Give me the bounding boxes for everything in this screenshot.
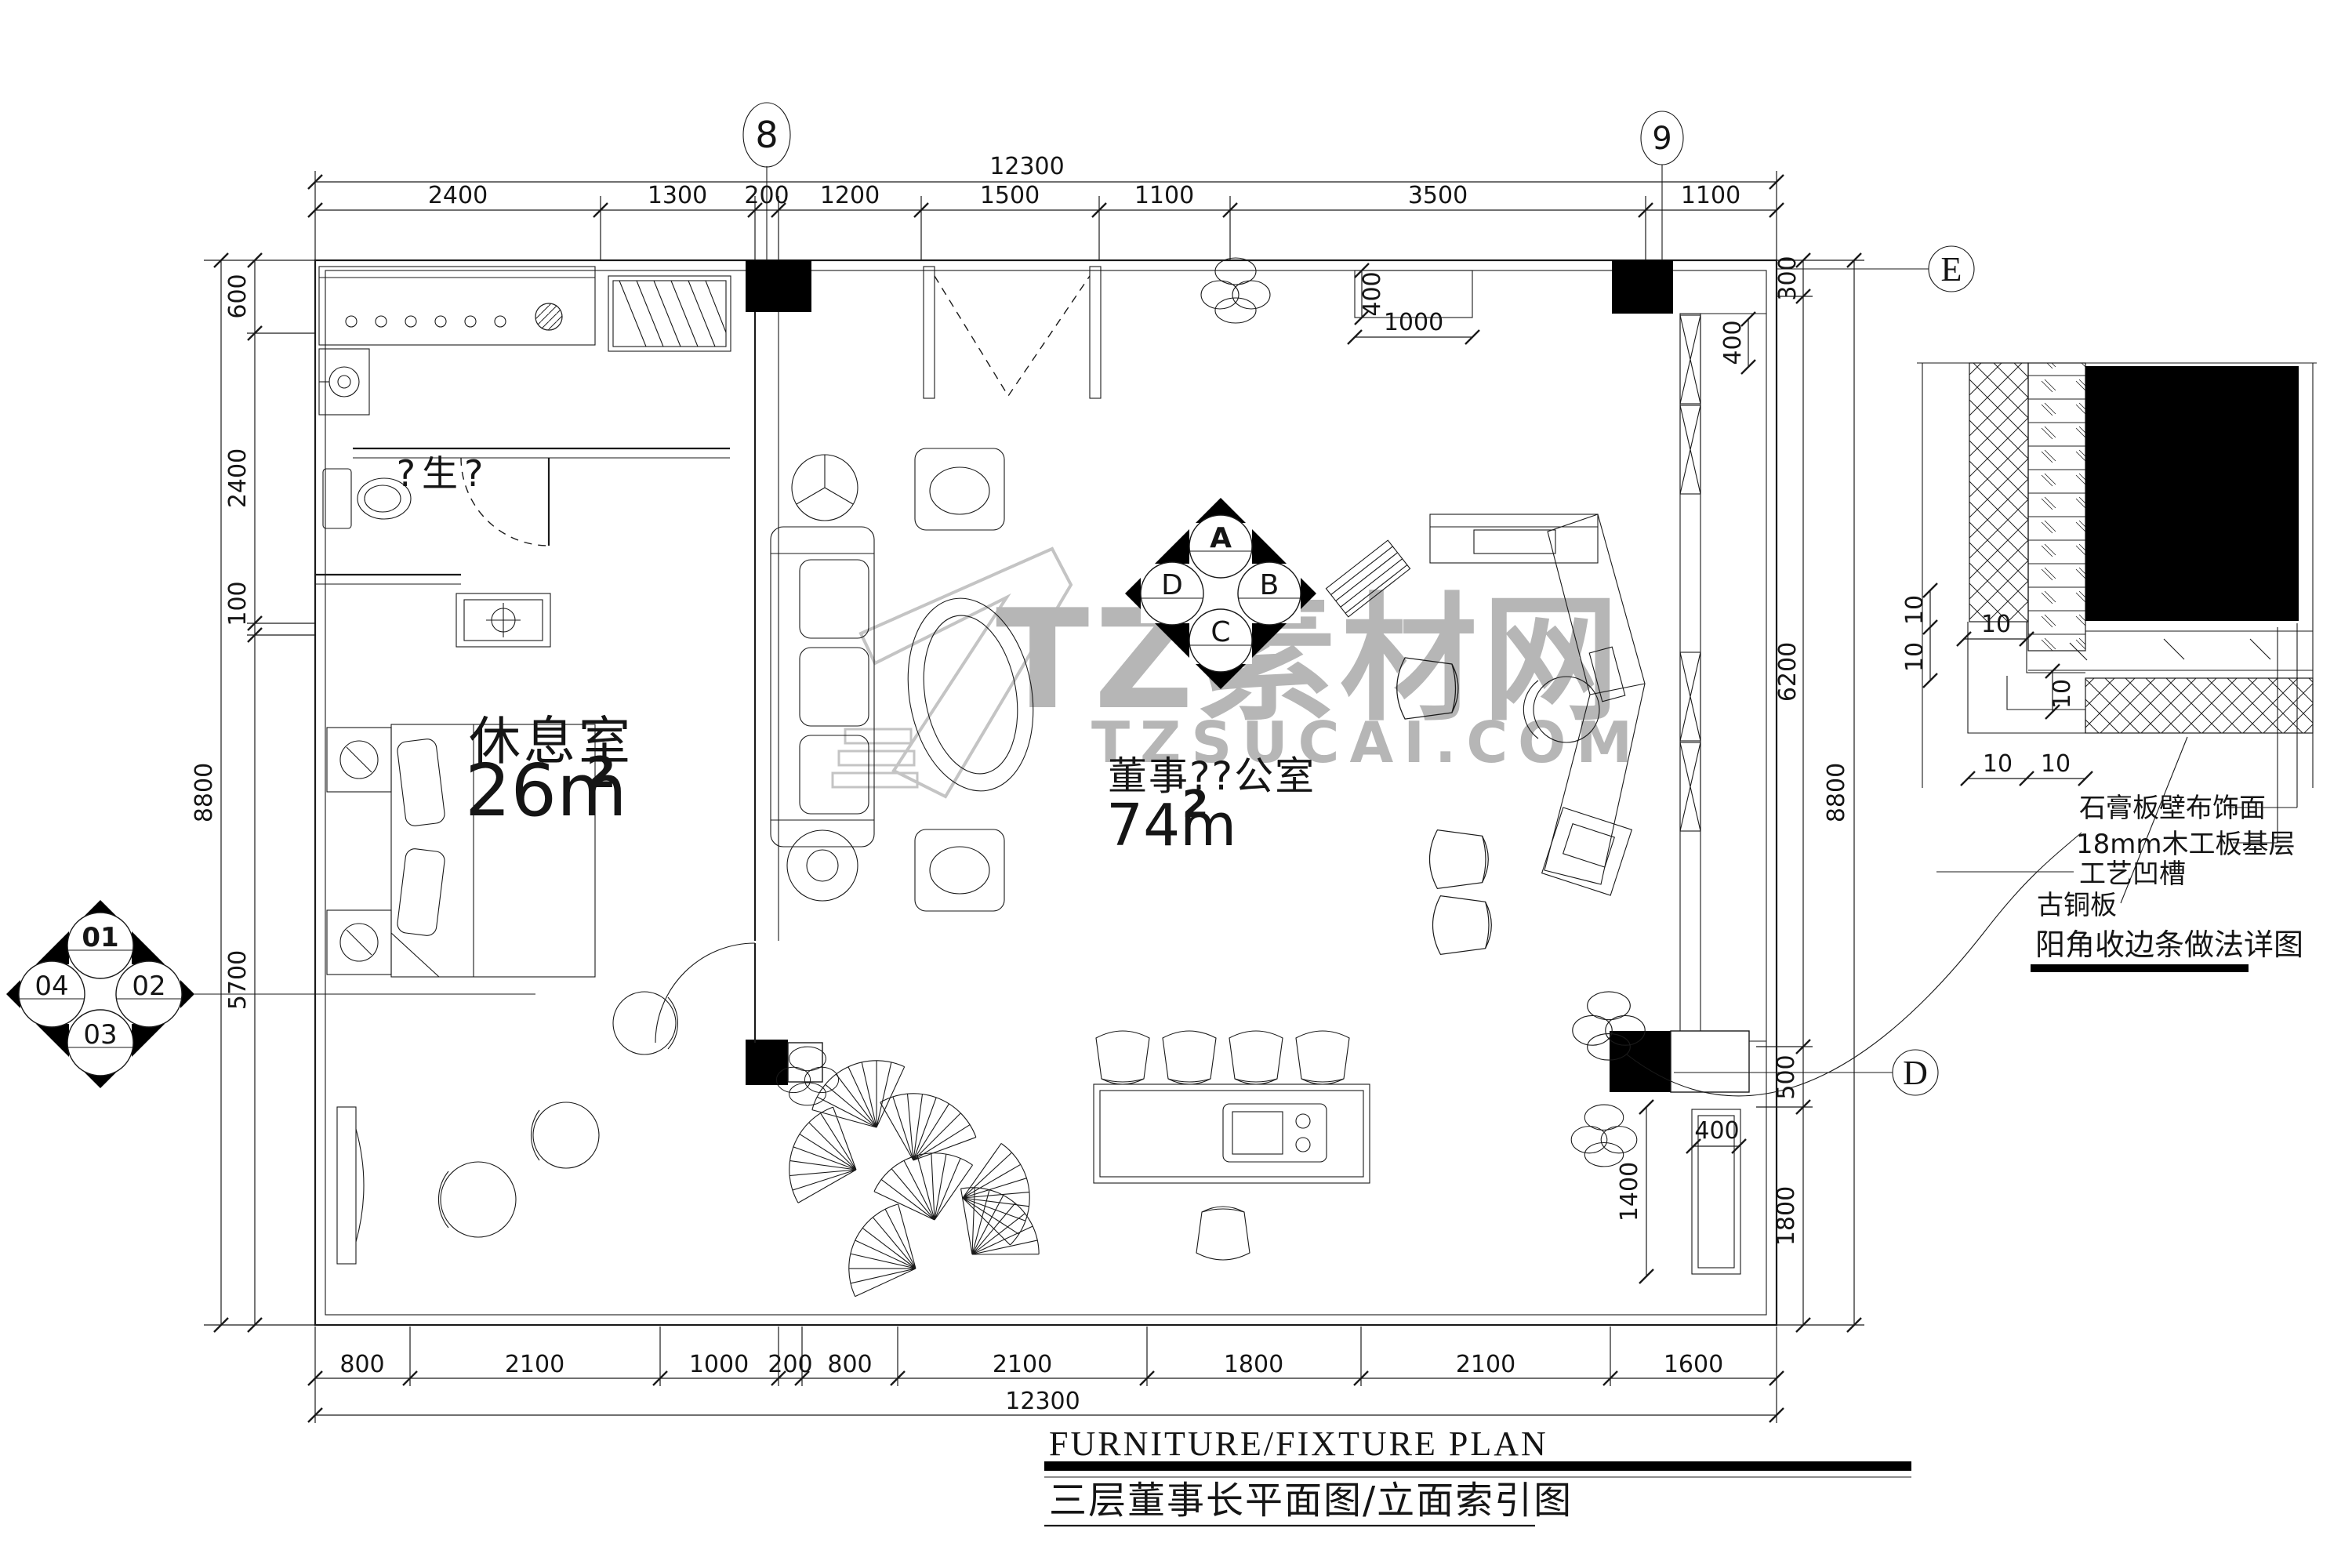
svg-text:500: 500 <box>1773 1054 1800 1099</box>
round-chair <box>438 1162 516 1237</box>
svg-text:02: 02 <box>132 971 165 1002</box>
side-table <box>787 830 858 901</box>
guest-chair <box>1430 830 1489 889</box>
detail-title: 阳角收边条做法详图 <box>2035 927 2303 962</box>
wood-hatch <box>2028 363 2085 651</box>
grid-bubble-9: 9 <box>1652 121 1671 157</box>
svg-text:10: 10 <box>2041 750 2071 778</box>
armchair <box>915 448 1004 530</box>
svg-text:3500: 3500 <box>1408 182 1468 209</box>
title-en: FURNITURE/FIXTURE PLAN <box>1049 1425 1548 1463</box>
dim-top-total: 12300 <box>989 153 1064 180</box>
svg-text:2100: 2100 <box>505 1351 564 1378</box>
dim-left-total: 8800 <box>191 763 218 822</box>
svg-text:1600: 1600 <box>1664 1351 1723 1378</box>
column-grid8 <box>746 260 811 312</box>
side-table <box>792 455 858 521</box>
sink <box>319 349 369 415</box>
svg-text:800: 800 <box>339 1351 384 1378</box>
dims-right: 300 6200 500 1800 8800 <box>1756 253 1864 1332</box>
room-area-office: 74m <box>1106 792 1236 859</box>
svg-text:1400: 1400 <box>1616 1162 1643 1221</box>
plaster-hatch <box>1969 363 2028 622</box>
bathroom: ?生? <box>319 267 595 546</box>
plant <box>833 1142 1054 1315</box>
svg-text:200: 200 <box>744 182 789 209</box>
svg-text:C: C <box>1210 616 1230 648</box>
svg-text:200: 200 <box>768 1351 812 1378</box>
dims-bottom: 800 2100 1000 200 800 2100 1800 2100 160… <box>308 1327 1784 1423</box>
svg-text:D: D <box>1161 569 1183 601</box>
svg-text:300: 300 <box>1774 256 1802 300</box>
title-block: FURNITURE/FIXTURE PLAN 三层董事长平面图/立面索引图 <box>1044 1425 1911 1526</box>
armchair <box>531 1102 599 1168</box>
svg-text:1800: 1800 <box>1224 1351 1283 1378</box>
grid-bubble-D: D <box>1903 1054 1928 1092</box>
floorplan-drawing: TZ素材网 TZSUCAI.COM <box>0 0 2352 1568</box>
nightstand <box>327 910 391 975</box>
grid-bubble-8: 8 <box>755 114 778 156</box>
callout-label: 石膏板壁布饰面 <box>2079 793 2266 824</box>
callout-label: 18mm木工板基层 <box>2076 829 2296 860</box>
dims-top: 12300 2400 1300 200 1200 1500 1100 3500 … <box>308 153 1784 260</box>
dims-left: 600 2400 100 5700 8800 <box>191 253 315 1332</box>
bedroom: 休息室 26m 2 <box>327 593 755 1264</box>
svg-text:1500: 1500 <box>980 182 1040 209</box>
svg-text:1100: 1100 <box>1134 182 1194 209</box>
svg-text:100: 100 <box>224 581 252 626</box>
svg-text:800: 800 <box>827 1351 872 1378</box>
wardrobe <box>608 276 731 351</box>
laptop-table <box>1542 808 1632 895</box>
section-fill <box>2085 366 2299 621</box>
callout-label: 工艺凹槽 <box>2079 858 2186 890</box>
sofa <box>771 527 874 847</box>
armchair <box>915 829 1004 911</box>
svg-text:10: 10 <box>2049 679 2076 709</box>
svg-text:1800: 1800 <box>1773 1186 1800 1246</box>
bath-label: ?生? <box>397 452 490 495</box>
meeting-table-group <box>1094 1031 1370 1260</box>
console-table <box>456 593 550 647</box>
svg-text:1000: 1000 <box>689 1351 749 1378</box>
callout-label: 古铜板 <box>2037 890 2117 921</box>
svg-text:10: 10 <box>1901 642 1929 672</box>
svg-text:6200: 6200 <box>1774 642 1802 702</box>
vanity-counter <box>319 267 595 345</box>
svg-text:1200: 1200 <box>820 182 880 209</box>
room-area-rest-sup: 2 <box>586 748 616 797</box>
svg-text:600: 600 <box>224 274 252 318</box>
svg-text:2100: 2100 <box>1456 1351 1515 1378</box>
detail-callout: 石膏板壁布饰面 18mm木工板基层 工艺凹槽 古铜板 阳角收边条做法详图 <box>1936 623 2303 972</box>
bedroom-door-swing <box>655 943 755 1043</box>
dim-bottom-total: 12300 <box>1005 1388 1080 1415</box>
elevation-index-left: 01 02 03 04 <box>6 900 535 1088</box>
svg-text:10: 10 <box>1901 595 1929 625</box>
grid-bubble-E: E <box>1941 250 1962 289</box>
svg-text:10: 10 <box>1983 750 2013 778</box>
svg-text:1300: 1300 <box>648 182 707 209</box>
svg-text:400: 400 <box>1694 1117 1739 1145</box>
column-grid9 <box>1612 260 1673 314</box>
office-lounge <box>771 448 1054 1315</box>
nightstand <box>327 728 391 792</box>
svg-text:03: 03 <box>83 1019 117 1051</box>
corner-detail: 10 10 10 10 10 10 <box>1901 363 2317 788</box>
tv-console <box>337 1107 364 1264</box>
svg-text:B: B <box>1260 569 1279 601</box>
svg-text:400: 400 <box>1719 320 1747 365</box>
svg-text:1100: 1100 <box>1681 182 1740 209</box>
entry-double-door <box>924 267 1101 398</box>
lounge-chair <box>613 992 677 1054</box>
svg-text:01: 01 <box>82 922 118 953</box>
dim-right-total: 8800 <box>1823 763 1850 822</box>
svg-text:A: A <box>1210 522 1232 554</box>
floorplan-sheet: TZ素材网 TZSUCAI.COM <box>0 0 2352 1568</box>
column-bottom <box>746 1040 788 1085</box>
svg-text:10: 10 <box>1981 611 2011 638</box>
svg-text:1000: 1000 <box>1384 309 1443 336</box>
guest-chair <box>1433 896 1492 955</box>
title-zh: 三层董事长平面图/立面索引图 <box>1049 1479 1573 1523</box>
svg-text:5700: 5700 <box>224 950 252 1010</box>
svg-text:2400: 2400 <box>224 448 252 508</box>
svg-text:04: 04 <box>34 971 68 1002</box>
svg-text:2100: 2100 <box>993 1351 1052 1378</box>
room-area-office-sup: 2 <box>1182 782 1208 826</box>
svg-text:400: 400 <box>1359 271 1386 316</box>
svg-text:2400: 2400 <box>428 182 488 209</box>
